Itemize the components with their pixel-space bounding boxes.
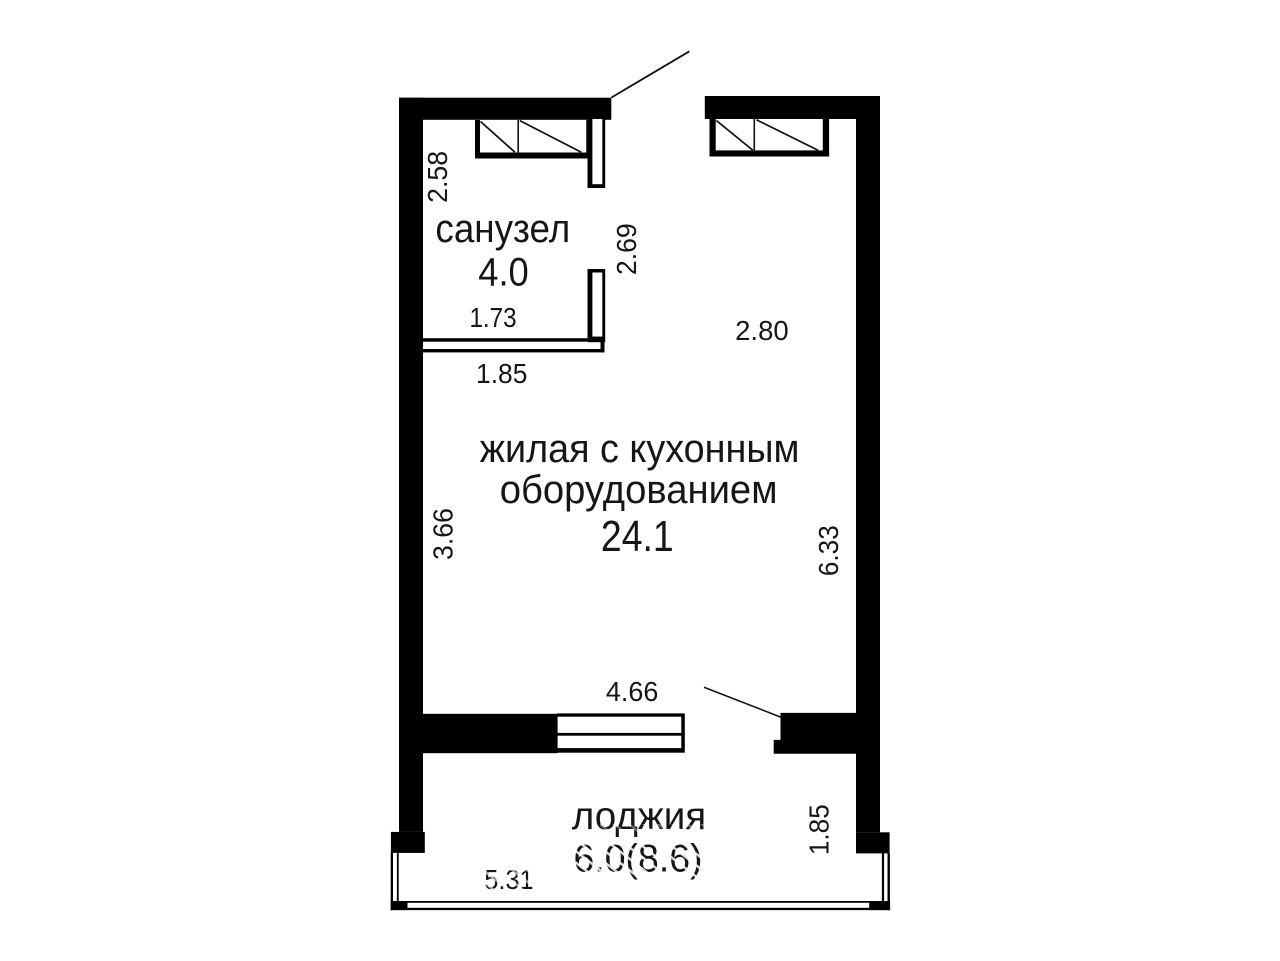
svg-text:2.80: 2.80	[735, 315, 789, 346]
svg-text:4.0: 4.0	[478, 250, 529, 295]
svg-text:1.85: 1.85	[804, 804, 835, 855]
svg-text:4.66: 4.66	[606, 676, 658, 707]
svg-text:жилая с кухонным: жилая с кухонным	[480, 427, 800, 471]
svg-text:2.69: 2.69	[611, 223, 642, 275]
svg-text:3.66: 3.66	[427, 508, 458, 560]
svg-text:24.1: 24.1	[601, 511, 674, 561]
svg-text:2.58: 2.58	[422, 151, 453, 203]
svg-text:6.33: 6.33	[813, 525, 844, 576]
svg-text:оборудованием: оборудованием	[500, 468, 778, 512]
svg-text:1.73: 1.73	[469, 304, 516, 334]
svg-text:санузел: санузел	[435, 207, 570, 252]
svg-text:1.85: 1.85	[476, 359, 527, 390]
